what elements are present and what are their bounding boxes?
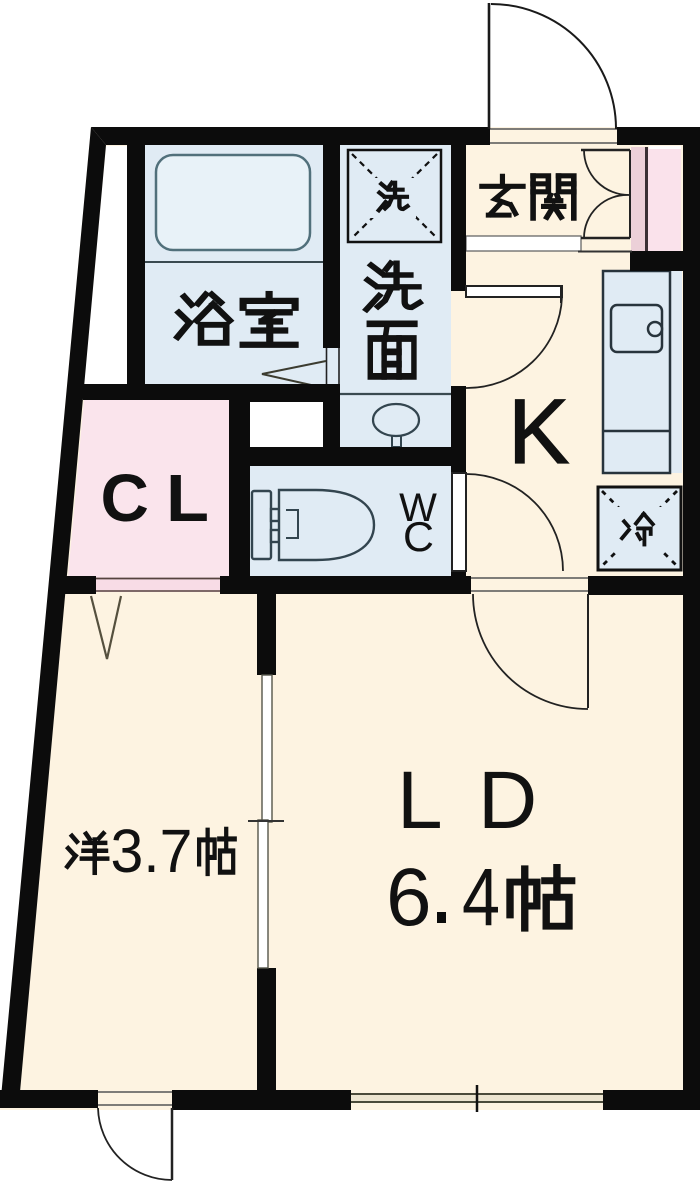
svg-text:D: D [478,755,537,846]
svg-text:6: 6 [386,852,432,943]
svg-text:4: 4 [462,852,500,943]
svg-text:L: L [166,461,209,536]
svg-text:L: L [397,755,443,846]
svg-text:3.7: 3.7 [111,817,193,885]
svg-text:C: C [101,461,149,536]
svg-text:K: K [508,381,569,483]
svg-text:C: C [403,513,434,560]
